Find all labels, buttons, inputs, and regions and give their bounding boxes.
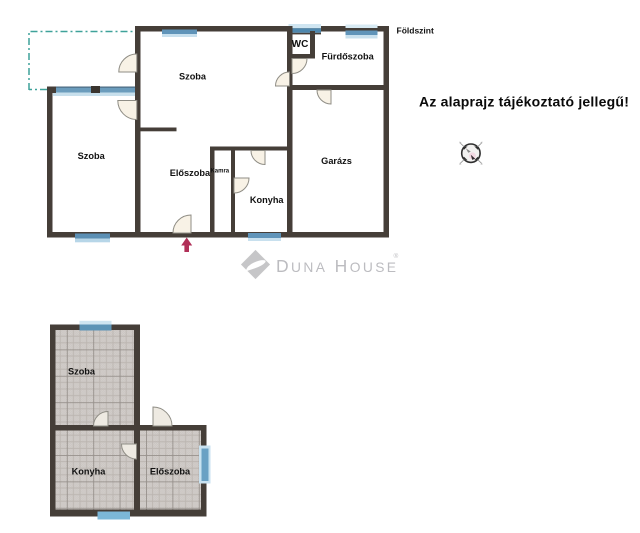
svg-text:Konyha: Konyha — [72, 467, 107, 477]
svg-text:®: ® — [394, 252, 399, 260]
svg-text:WC: WC — [292, 39, 309, 50]
svg-text:Előszoba: Előszoba — [150, 467, 191, 477]
svg-text:Az alaprajz tájékoztató jelleg: Az alaprajz tájékoztató jellegű! — [419, 94, 629, 110]
svg-text:Fürdőszoba: Fürdőszoba — [322, 52, 375, 62]
svg-text:Szoba: Szoba — [179, 72, 207, 82]
svg-text:Garázs: Garázs — [321, 156, 352, 166]
svg-text:DUNA HOUSE: DUNA HOUSE — [276, 256, 398, 276]
svg-text:Előszoba: Előszoba — [170, 168, 211, 178]
svg-text:Szoba: Szoba — [78, 151, 106, 161]
svg-text:Szoba: Szoba — [68, 367, 96, 377]
svg-text:Kamra: Kamra — [210, 169, 229, 175]
svg-text:Földszint: Földszint — [397, 26, 434, 36]
svg-text:Konyha: Konyha — [250, 195, 285, 205]
